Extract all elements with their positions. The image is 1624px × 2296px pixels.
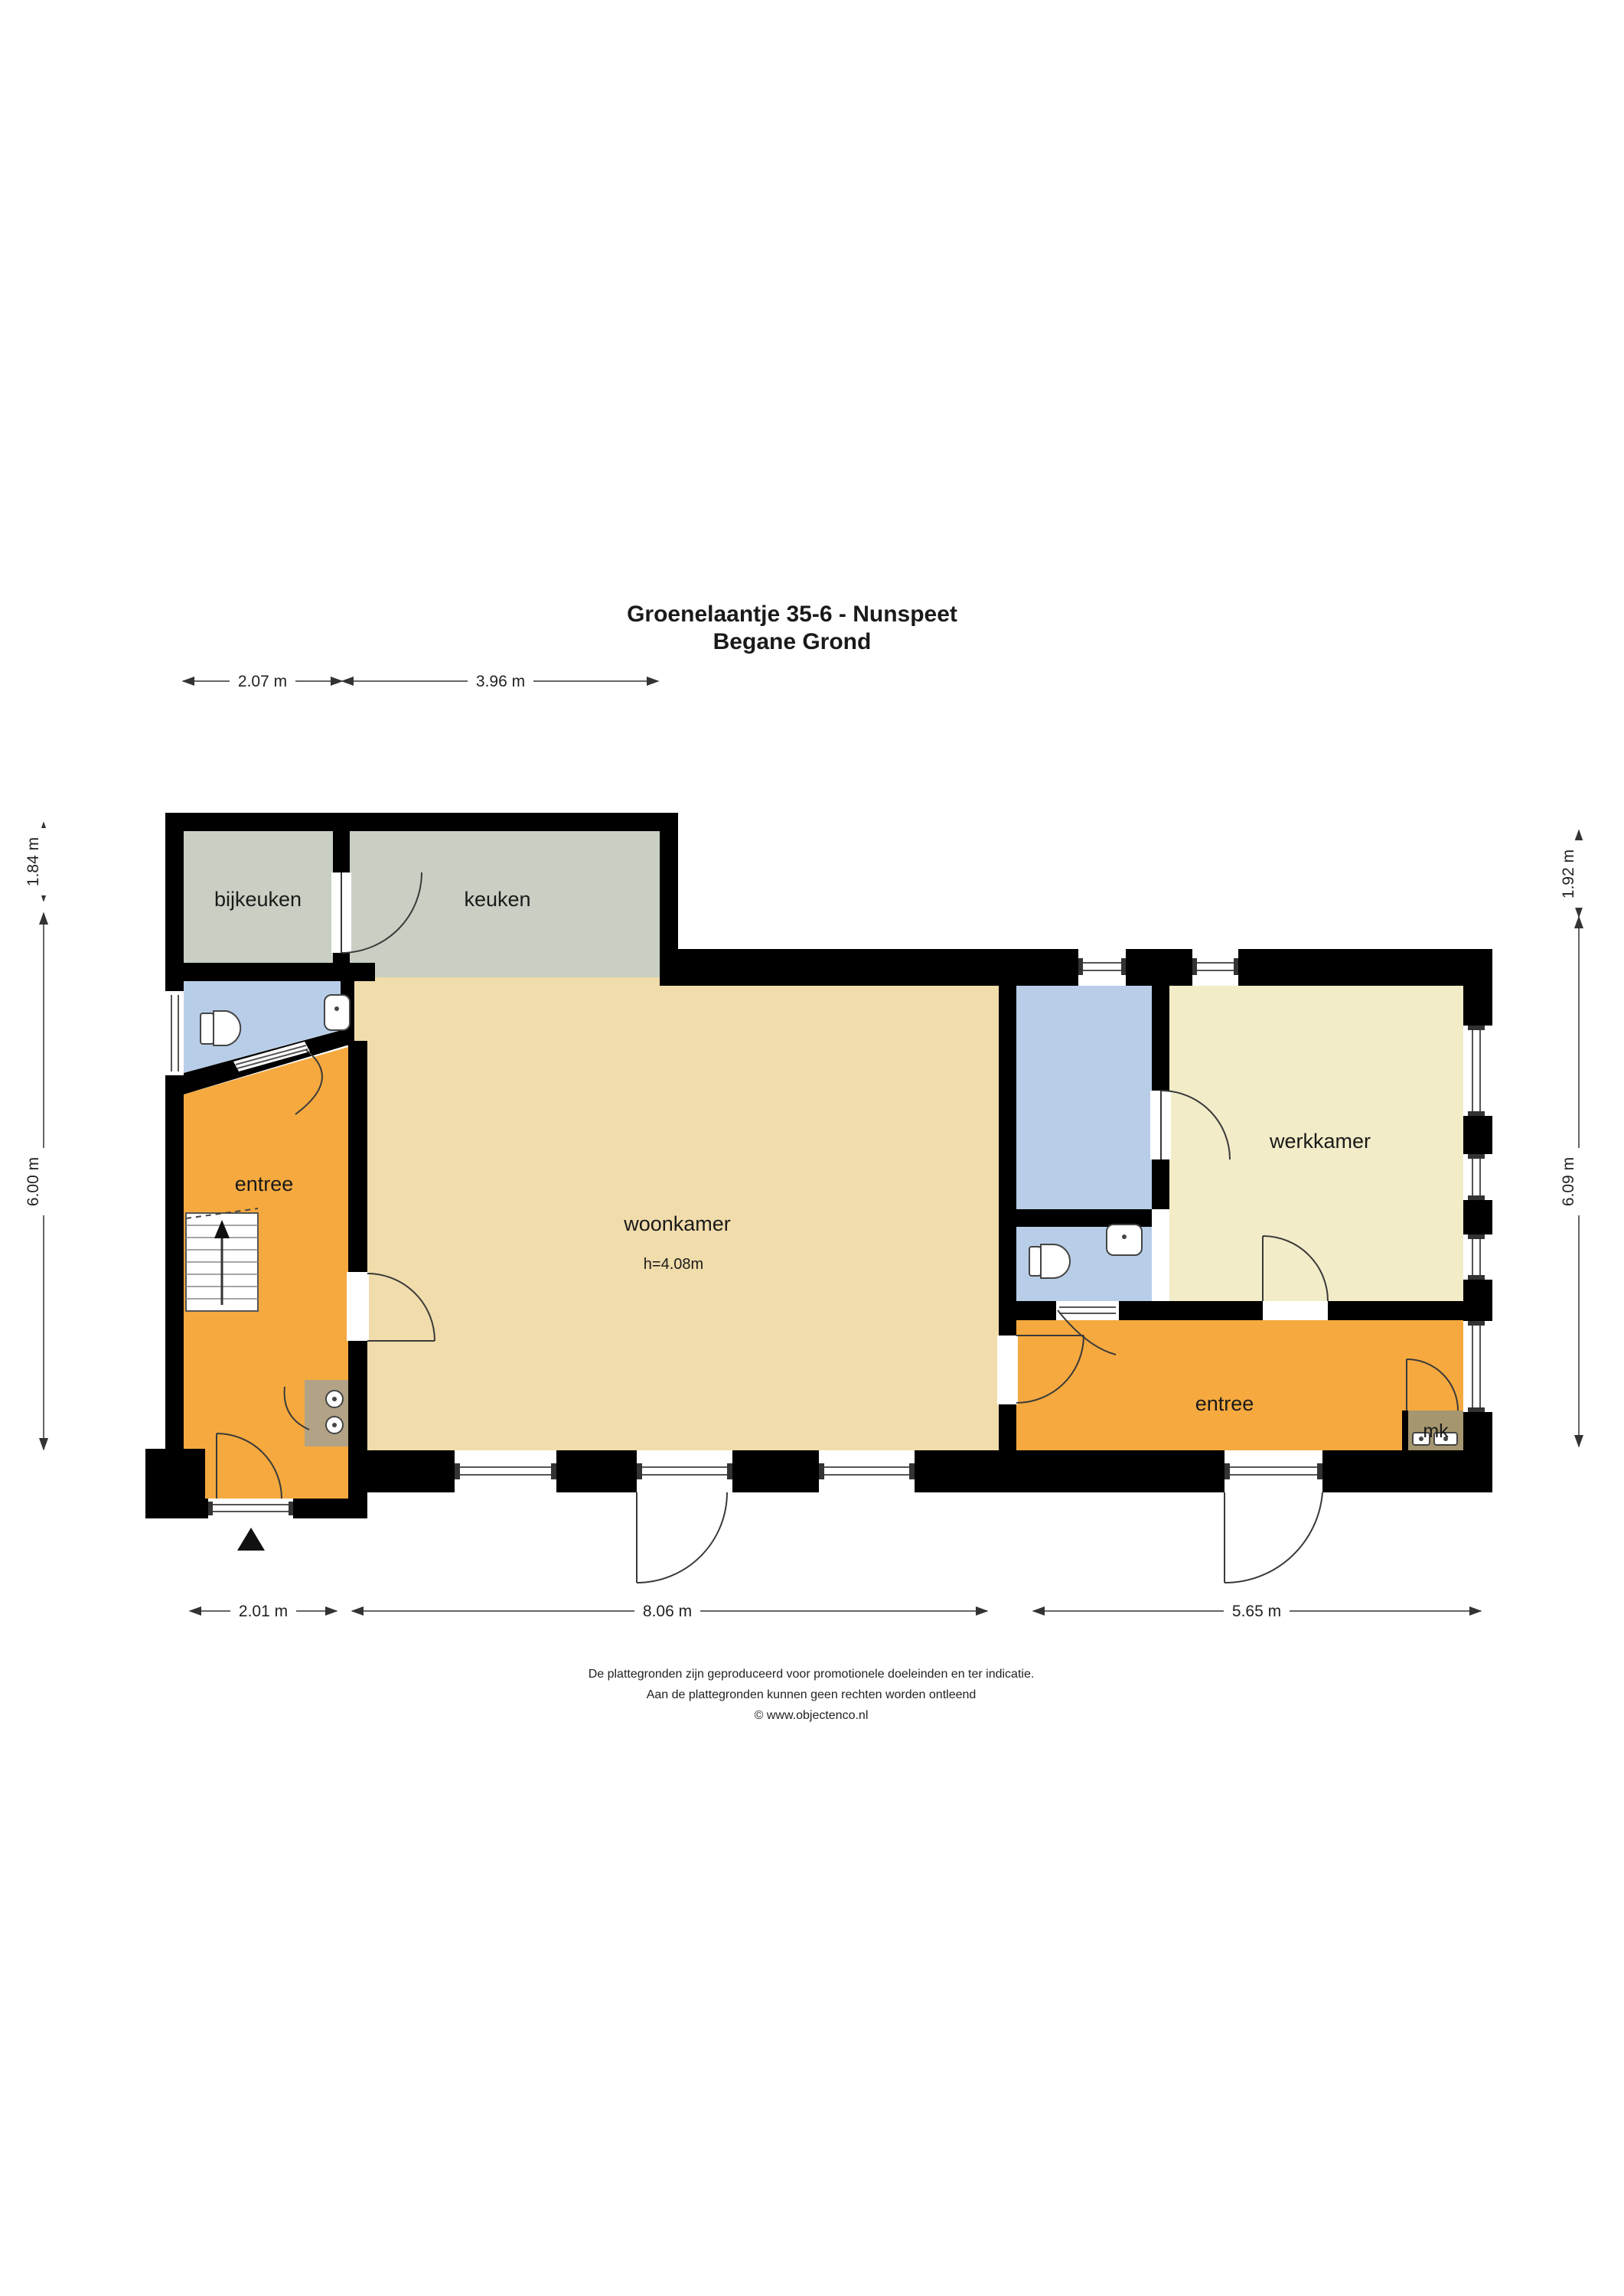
dim-top-2: 3.96 m xyxy=(476,673,525,690)
window-right-2 xyxy=(1463,1154,1492,1200)
dim-bottom-2: 8.06 m xyxy=(643,1603,692,1620)
front-door-entree-right-opening xyxy=(1225,1450,1322,1492)
page-title: Groenelaantje 35-6 - Nunspeet xyxy=(627,602,957,627)
staircase xyxy=(186,1208,258,1311)
window-right-3 xyxy=(1463,1234,1492,1280)
page-subtitle: Begane Grond xyxy=(713,629,872,654)
sink-left-icon xyxy=(324,995,350,1030)
dim-top-1: 2.07 m xyxy=(238,673,287,690)
window-right-4 xyxy=(1463,1321,1492,1412)
floor-plan: Groenelaantje 35-6 - Nunspeet Begane Gro… xyxy=(0,0,1624,2296)
dim-bottom-3: 5.65 m xyxy=(1232,1603,1281,1620)
dim-bottom-1: 2.01 m xyxy=(239,1603,288,1620)
footer-line-3: © www.objectenco.nl xyxy=(755,1709,869,1722)
dim-right-1: 1.92 m xyxy=(1560,850,1577,899)
window-left-1 xyxy=(165,991,184,1075)
floor-plan-page: Groenelaantje 35-6 - Nunspeet Begane Gro… xyxy=(0,0,1624,2296)
room-label-entree-left: entree xyxy=(235,1172,294,1195)
room-blue-floor xyxy=(1016,986,1152,1209)
window-right-1 xyxy=(1463,1026,1492,1116)
sink-right-icon xyxy=(1107,1225,1142,1255)
window-bottom-1 xyxy=(455,1450,556,1492)
room-floors xyxy=(184,831,1463,1499)
room-label-werkkamer: werkkamer xyxy=(1269,1130,1371,1153)
room-label-bijkeuken: bijkeuken xyxy=(214,888,302,911)
room-label-woonkamer-height: h=4.08m xyxy=(644,1256,703,1273)
entrance-arrow-icon xyxy=(237,1528,265,1551)
room-label-mk: mk xyxy=(1423,1420,1449,1442)
window-bottom-2 xyxy=(819,1450,915,1492)
toilet-right-icon xyxy=(1029,1244,1070,1278)
dim-right-2: 6.09 m xyxy=(1560,1157,1577,1206)
footer-line-2: Aan de plattegronden kunnen geen rechten… xyxy=(647,1688,977,1701)
room-label-woonkamer: woonkamer xyxy=(623,1212,731,1235)
room-label-entree-right: entree xyxy=(1195,1392,1254,1415)
dim-left-2: 6.00 m xyxy=(24,1157,42,1206)
front-door-woonkamer-opening xyxy=(637,1450,732,1492)
dim-left-1: 1.84 m xyxy=(24,837,42,886)
toilet-left-icon xyxy=(201,1011,240,1045)
closet-left xyxy=(305,1380,348,1446)
room-label-keuken: keuken xyxy=(464,888,530,911)
window-top-1 xyxy=(1078,949,1126,986)
front-door-entree-left-opening xyxy=(208,1499,293,1518)
window-top-2 xyxy=(1192,949,1238,986)
footer-line-1: De plattegronden zijn geproduceerd voor … xyxy=(589,1668,1035,1681)
